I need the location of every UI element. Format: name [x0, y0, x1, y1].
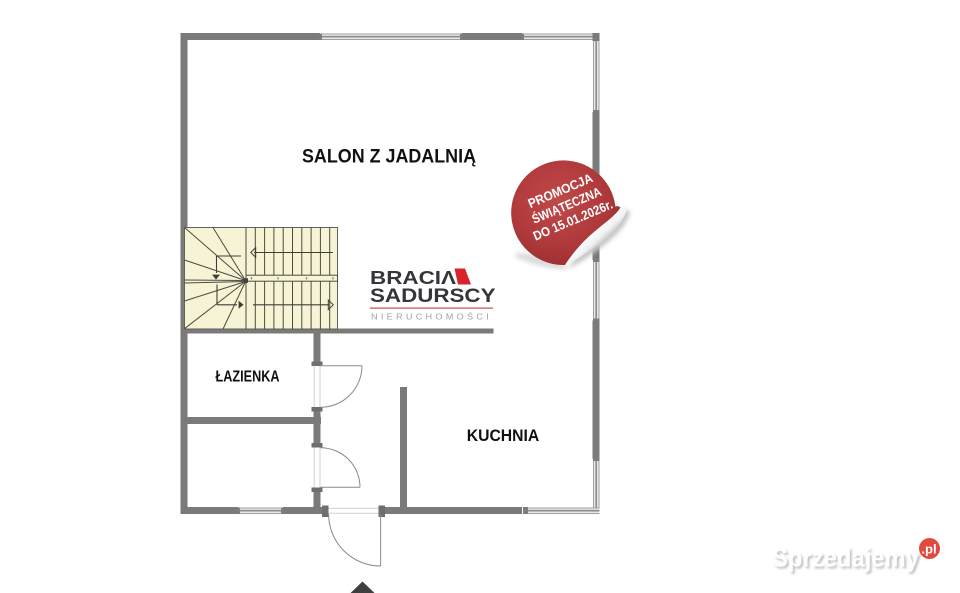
svg-text:.pl: .pl	[921, 542, 936, 557]
svg-text:ŁAZIENKA: ŁAZIENKA	[216, 368, 280, 385]
svg-text:SALON Z JADALNIĄ: SALON Z JADALNIĄ	[302, 147, 476, 168]
svg-text:SADURSCY: SADURSCY	[370, 285, 496, 307]
svg-text:NIERUCHOMOŚCI: NIERUCHOMOŚCI	[371, 310, 492, 321]
svg-text:Sprzedajemy: Sprzedajemy	[772, 543, 919, 573]
svg-text:KUCHNIA: KUCHNIA	[467, 427, 540, 445]
